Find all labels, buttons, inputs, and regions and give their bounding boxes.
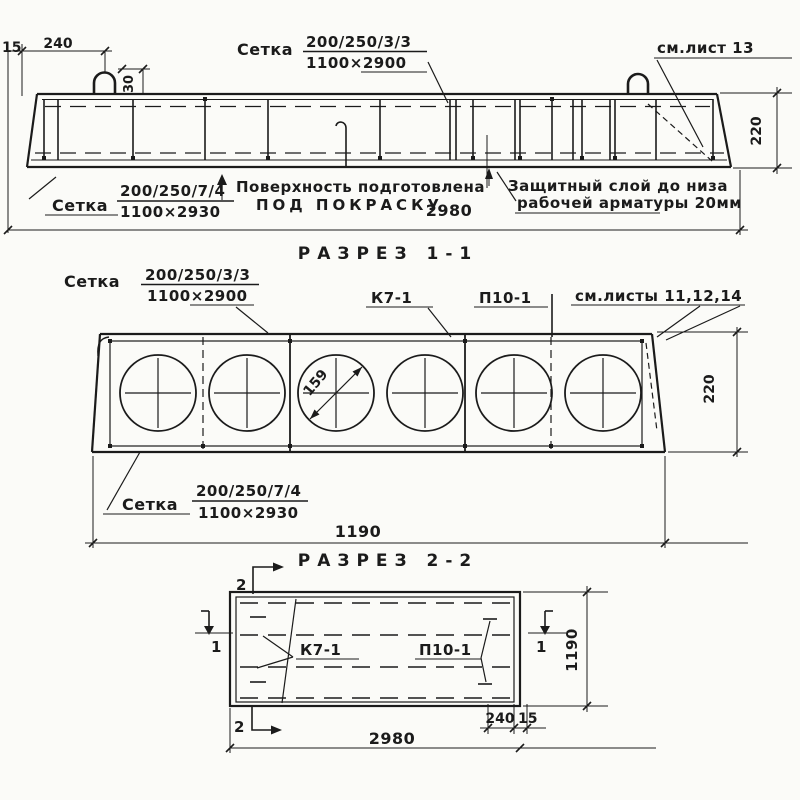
mesh-bottom-label-2: Сетка <box>122 495 178 514</box>
engineering-drawing-hollow-core-slab: 15 240 30 220 2980 Сетка 200/250/3/3 110… <box>0 0 800 800</box>
see-sheet-note: см.лист 13 <box>657 39 754 57</box>
beam-left-edge <box>27 94 37 167</box>
dim-240: 240 <box>43 36 72 52</box>
mesh-bottom-label: Сетка <box>52 196 108 215</box>
lifting-loop-left <box>94 73 115 95</box>
beam-right-edge <box>717 94 731 167</box>
dim-220: 220 <box>749 116 765 145</box>
see-sheet-leader <box>657 60 703 147</box>
embedded-part-dashed <box>648 104 712 161</box>
surface-note-line2: ПОД ПОКРАСКУ <box>256 196 443 214</box>
plan-view: К7-1 П10-1 <box>230 592 520 706</box>
section-2-2-dimensions: 220 1190 <box>85 327 748 548</box>
cut-mark-1-left: 1 <box>211 638 222 656</box>
k7-label: К7-1 <box>371 289 412 307</box>
plan-dimensions: 1190 240 15 2980 <box>226 586 656 753</box>
cut-mark-2-top: 2 <box>236 576 247 594</box>
see-sheets-note: см.листы 11,12,14 <box>575 287 742 305</box>
lifting-loop-right <box>628 74 648 94</box>
plan-k7-label: К7-1 <box>300 641 341 659</box>
mesh-top-spec: 200/250/3/3 <box>306 33 411 51</box>
surface-note-line1: Поверхность подготовлена <box>236 178 485 196</box>
section-1-1-title: РАЗРЕЗ 1-1 <box>298 244 478 264</box>
hooked-bar <box>336 122 346 166</box>
section-2-2-title: РАЗРЕЗ 2-2 <box>298 551 478 571</box>
mesh-bottom-spec: 200/250/7/4 <box>120 182 225 200</box>
section-right-edge <box>652 334 665 452</box>
cut-mark-2-bottom: 2 <box>234 718 245 736</box>
cover-note-line2: рабочей арматуры 20мм <box>517 194 742 212</box>
mesh-top-label: Сетка <box>237 40 293 59</box>
hollow-cores <box>120 355 641 431</box>
mesh-top-size: 1100×2900 <box>306 54 407 72</box>
cut-mark-1-right: 1 <box>536 638 547 656</box>
mesh-bottom-size-2: 1100×2930 <box>198 504 299 522</box>
cover-note-line1: Защитный слой до низа <box>508 177 728 195</box>
dim-220-2: 220 <box>702 374 718 403</box>
section-2-2-annotations-bottom: Сетка 200/250/7/4 1100×2930 РАЗРЕЗ 2-2 <box>103 452 478 571</box>
mesh-top-label-2: Сетка <box>64 272 120 291</box>
dim-1190: 1190 <box>335 522 382 541</box>
mesh-top-spec-2: 200/250/3/3 <box>145 266 250 284</box>
plan-section-marks: 2 2 1 1 <box>195 563 566 737</box>
plan-p10-label: П10-1 <box>419 641 472 659</box>
plan-dim-15: 15 <box>518 711 537 727</box>
section-left-edge <box>92 334 100 452</box>
mesh-top-size-2: 1100×2900 <box>147 287 248 305</box>
mesh-bottom-spec-2: 200/250/7/4 <box>196 482 301 500</box>
plan-dim-240: 240 <box>485 711 514 727</box>
plan-outline <box>230 592 520 706</box>
section-2-2-view: 159 <box>92 334 665 452</box>
plan-dim-2980: 2980 <box>369 729 416 748</box>
cover-leader-arrow <box>485 168 493 179</box>
mesh-bottom-size: 1100×2930 <box>120 203 221 221</box>
plan-inner-outline <box>236 597 514 702</box>
dim-15: 15 <box>2 40 21 56</box>
p10-label: П10-1 <box>479 289 532 307</box>
dim-30: 30 <box>122 75 137 93</box>
plan-dim-1190: 1190 <box>563 628 581 672</box>
section-2-2-annotations-top: Сетка 200/250/3/3 1100×2900 К7-1 П10-1 с… <box>64 266 745 340</box>
